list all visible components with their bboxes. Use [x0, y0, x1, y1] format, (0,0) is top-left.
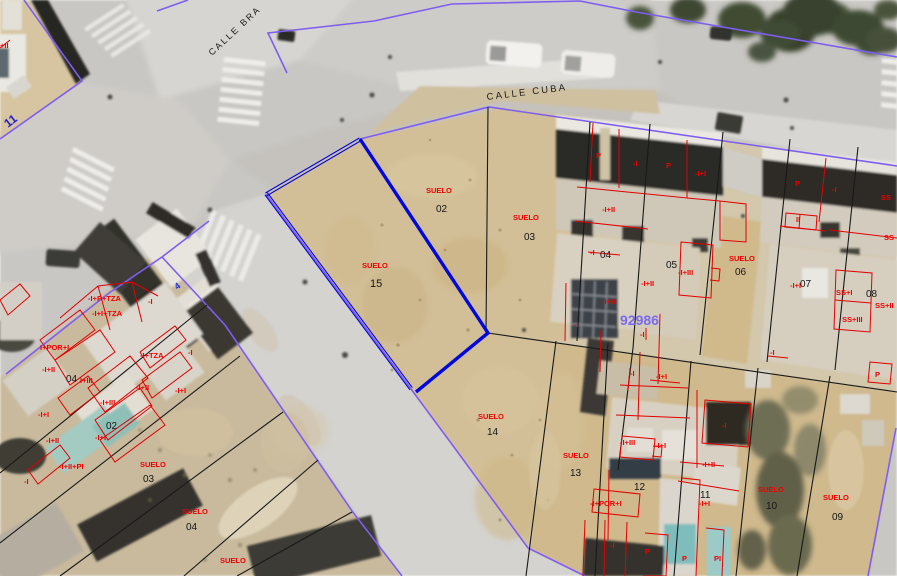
svg-text:15: 15 — [370, 278, 382, 290]
svg-text:P: P — [645, 547, 650, 556]
svg-text:04: 04 — [600, 250, 612, 261]
svg-text:-I+I: -I+I — [38, 410, 49, 419]
svg-text:-I: -I — [188, 348, 193, 357]
svg-text:SUELO: SUELO — [563, 451, 589, 460]
svg-text:04: 04 — [186, 522, 198, 533]
svg-text:PI: PI — [714, 554, 721, 563]
svg-text:04: 04 — [66, 374, 78, 385]
svg-text:-I: -I — [590, 248, 595, 257]
svg-text:-I+TZA: -I+TZA — [140, 351, 164, 360]
svg-text:-I: -I — [24, 477, 29, 486]
svg-text:-I+II+PI: -I+II+PI — [59, 462, 84, 471]
svg-text:SS: SS — [884, 233, 894, 242]
svg-text:SS+II: SS+II — [875, 301, 894, 310]
svg-text:SUELO: SUELO — [182, 507, 208, 516]
svg-text:P: P — [682, 554, 687, 563]
svg-text:14: 14 — [487, 427, 499, 438]
svg-text:SUELO: SUELO — [729, 254, 755, 263]
svg-text:P: P — [795, 179, 800, 188]
svg-text:-I: -I — [574, 320, 579, 329]
svg-text:-I+II: -I+II — [702, 460, 715, 469]
svg-text:-I: -I — [633, 159, 638, 168]
svg-text:12: 12 — [634, 482, 646, 493]
svg-text:SS+I: SS+I — [836, 288, 852, 297]
svg-text:SUELO: SUELO — [478, 412, 504, 421]
svg-text:03: 03 — [143, 474, 155, 485]
svg-text:-I+II: -I+II — [641, 279, 654, 288]
svg-text:-I+I: -I+I — [695, 169, 706, 178]
svg-text:II: II — [796, 215, 800, 224]
svg-text:05: 05 — [666, 260, 678, 271]
svg-text:06: 06 — [735, 267, 747, 278]
svg-text:SUELO: SUELO — [362, 261, 388, 270]
svg-text:SUELO: SUELO — [220, 556, 246, 565]
svg-text:11: 11 — [700, 490, 711, 501]
svg-text:02: 02 — [106, 421, 118, 432]
svg-text:SUELO: SUELO — [426, 186, 452, 195]
svg-text:SS: SS — [881, 193, 891, 202]
svg-text:SUELO: SUELO — [823, 493, 849, 502]
svg-text:-I: -I — [832, 185, 837, 194]
svg-text:-I+II: -I+II — [46, 436, 59, 445]
svg-text:-I+POR+I: -I+POR+I — [590, 499, 622, 508]
svg-text:-I+I: -I+I — [175, 386, 186, 395]
svg-text:-I+II: -I+II — [136, 383, 149, 392]
svg-text:09: 09 — [832, 512, 844, 523]
svg-text:07: 07 — [800, 279, 812, 290]
svg-text:92986: 92986 — [620, 312, 659, 328]
svg-text:-I+II: -I+II — [42, 365, 55, 374]
svg-text:-I: -I — [640, 330, 645, 339]
svg-text:-I+I: -I+I — [95, 433, 106, 442]
svg-text:SUELO: SUELO — [513, 213, 539, 222]
svg-text:-I+III: -I+III — [620, 438, 635, 447]
svg-text:-I: -I — [722, 421, 727, 430]
svg-text:13: 13 — [570, 468, 582, 479]
svg-text:08: 08 — [866, 289, 878, 300]
svg-text:+II: +II — [0, 41, 9, 50]
svg-text:10: 10 — [766, 501, 778, 512]
svg-text:-I+III: -I+III — [678, 268, 693, 277]
svg-text:-I: -I — [610, 541, 615, 550]
svg-text:P: P — [596, 151, 601, 160]
svg-text:SUELO: SUELO — [140, 460, 166, 469]
svg-text:SUELO: SUELO — [758, 485, 784, 494]
svg-text:I+POR+I: I+POR+I — [40, 343, 69, 352]
svg-text:-I+P+TZA: -I+P+TZA — [88, 294, 122, 303]
svg-text:P: P — [666, 161, 671, 170]
svg-text:-I+II: -I+II — [602, 205, 615, 214]
svg-text:-I+III: -I+III — [100, 398, 115, 407]
svg-text:-I+I: -I+I — [656, 372, 667, 381]
svg-text:-I: -I — [770, 348, 775, 357]
svg-text:-I+I+TZA: -I+I+TZA — [92, 309, 123, 318]
svg-text:-I: -I — [630, 369, 635, 378]
svg-text:-I: -I — [148, 297, 153, 306]
svg-text:P: P — [875, 370, 880, 379]
svg-text:SS+III: SS+III — [842, 315, 863, 324]
svg-text:02: 02 — [436, 204, 448, 215]
svg-text:I+III: I+III — [80, 376, 93, 385]
svg-text:03: 03 — [524, 232, 536, 243]
svg-text:-I+II: -I+II — [602, 297, 615, 306]
svg-text:-I+I: -I+I — [655, 441, 666, 450]
